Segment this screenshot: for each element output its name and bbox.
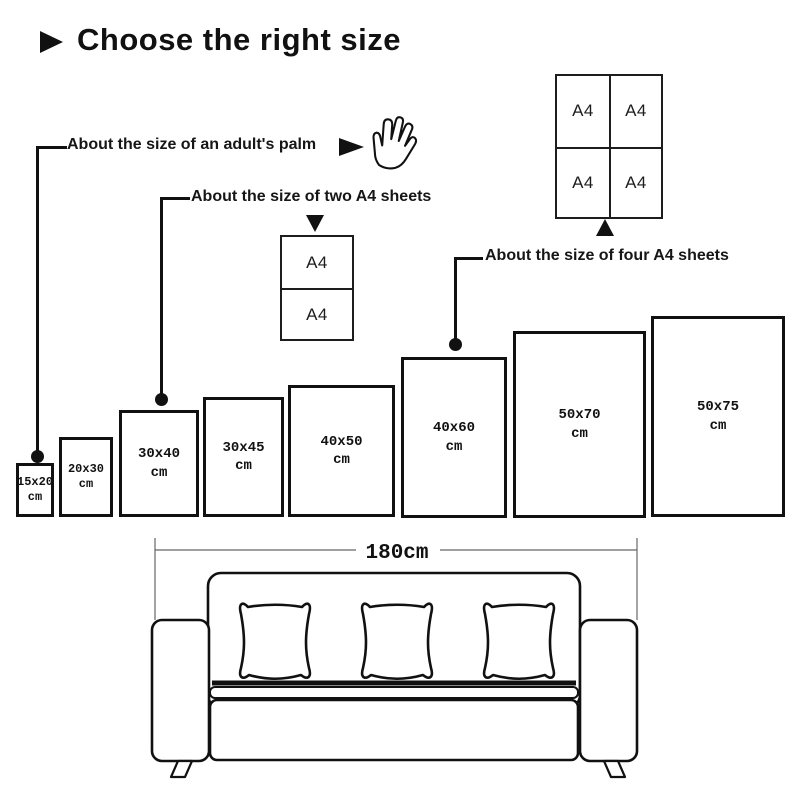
size-frame-15x20: 15x20 cm bbox=[16, 463, 54, 517]
frame-size-label: 20x30 bbox=[68, 462, 104, 477]
size-frame-50x75: 50x75 cm bbox=[651, 316, 785, 517]
size-frame-40x50: 40x50 cm bbox=[288, 385, 395, 517]
arrow-right-icon bbox=[339, 138, 364, 156]
sofa-armrest-right bbox=[580, 620, 637, 761]
a4-sheet-label: A4 bbox=[609, 147, 661, 218]
size-frame-30x45: 30x45 cm bbox=[203, 397, 284, 517]
pillow bbox=[362, 604, 432, 679]
sofa-armrest-left bbox=[152, 620, 209, 761]
size-frame-50x70: 50x70 cm bbox=[513, 331, 646, 518]
size-frame-20x30: 20x30 cm bbox=[59, 437, 113, 517]
four-a4-diagram: A4 A4 A4 A4 bbox=[555, 74, 663, 219]
arrow-down-icon bbox=[306, 215, 324, 232]
a4-sheet-label: A4 bbox=[609, 76, 661, 147]
frame-unit-label: cm bbox=[446, 438, 463, 456]
a4-sheet-label: A4 bbox=[557, 76, 609, 147]
frame-unit-label: cm bbox=[79, 477, 93, 492]
connector-palm-dot bbox=[31, 450, 44, 463]
pillow bbox=[484, 604, 554, 679]
size-frame-30x40: 30x40 cm bbox=[119, 410, 199, 517]
connector-two-a4 bbox=[160, 197, 190, 403]
connector-four-a4 bbox=[454, 257, 483, 348]
two-a4-diagram: A4 A4 bbox=[280, 235, 354, 341]
sofa-leg-left bbox=[171, 761, 192, 777]
frame-unit-label: cm bbox=[710, 417, 727, 435]
sofa-leg-right bbox=[604, 761, 625, 777]
sofa-width-label: 180cm bbox=[365, 542, 428, 565]
title-arrow-icon bbox=[40, 31, 63, 53]
sofa-legs bbox=[171, 761, 625, 777]
connector-two-a4-dot bbox=[155, 393, 168, 406]
frame-unit-label: cm bbox=[235, 457, 252, 475]
hand-icon bbox=[368, 114, 420, 172]
pillow bbox=[240, 604, 310, 679]
frame-unit-label: cm bbox=[151, 464, 168, 482]
a4-sheet-label: A4 bbox=[557, 147, 609, 218]
frame-size-label: 50x70 bbox=[558, 406, 600, 424]
page-title: Choose the right size bbox=[40, 22, 401, 58]
frame-unit-label: cm bbox=[333, 451, 350, 469]
connector-four-a4-dot bbox=[449, 338, 462, 351]
palm-annotation: About the size of an adult's palm bbox=[67, 136, 316, 154]
a4-sheet-label: A4 bbox=[282, 237, 352, 288]
frame-unit-label: cm bbox=[571, 425, 588, 443]
arrow-up-icon bbox=[596, 219, 614, 236]
frame-size-label: 40x50 bbox=[320, 433, 362, 451]
four-a4-annotation: About the size of four A4 sheets bbox=[485, 247, 729, 265]
frame-size-label: 15x20 bbox=[17, 475, 53, 490]
two-a4-annotation: About the size of two A4 sheets bbox=[191, 188, 431, 206]
sofa-base bbox=[210, 700, 578, 760]
connector-palm bbox=[36, 146, 67, 460]
sofa-pillows bbox=[240, 604, 554, 679]
a4-sheet-label: A4 bbox=[282, 288, 352, 339]
frame-size-label: 30x40 bbox=[138, 445, 180, 463]
size-guide-infographic: Choose the right size About the size of … bbox=[0, 0, 800, 800]
frame-size-label: 50x75 bbox=[697, 398, 739, 416]
frame-size-label: 30x45 bbox=[222, 439, 264, 457]
sofa-seat-cushion bbox=[210, 687, 578, 698]
frame-size-label: 40x60 bbox=[433, 419, 475, 437]
size-frame-40x60: 40x60 cm bbox=[401, 357, 507, 518]
sofa-illustration: 180cm bbox=[0, 520, 800, 800]
frame-unit-label: cm bbox=[28, 490, 42, 505]
page-title-text: Choose the right size bbox=[77, 22, 401, 58]
